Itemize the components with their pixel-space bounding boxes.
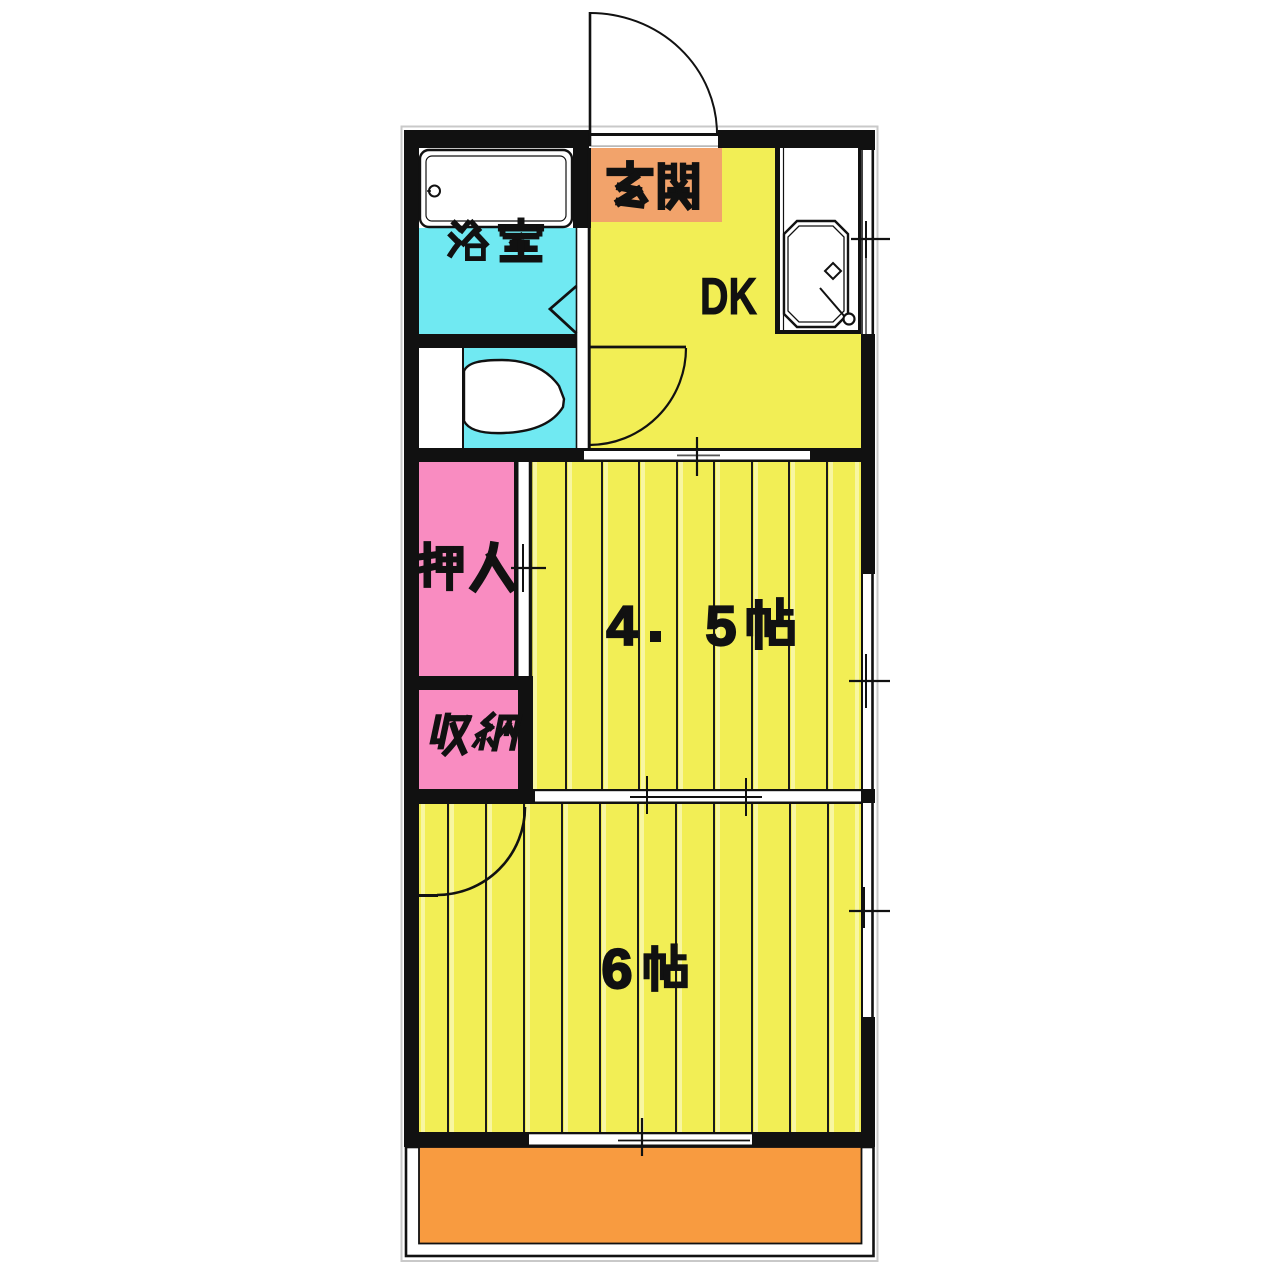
- svg-text:DK: DK: [700, 268, 757, 326]
- svg-text:5: 5: [705, 594, 736, 657]
- svg-text:6: 6: [601, 937, 632, 1000]
- svg-text:4: 4: [606, 594, 637, 657]
